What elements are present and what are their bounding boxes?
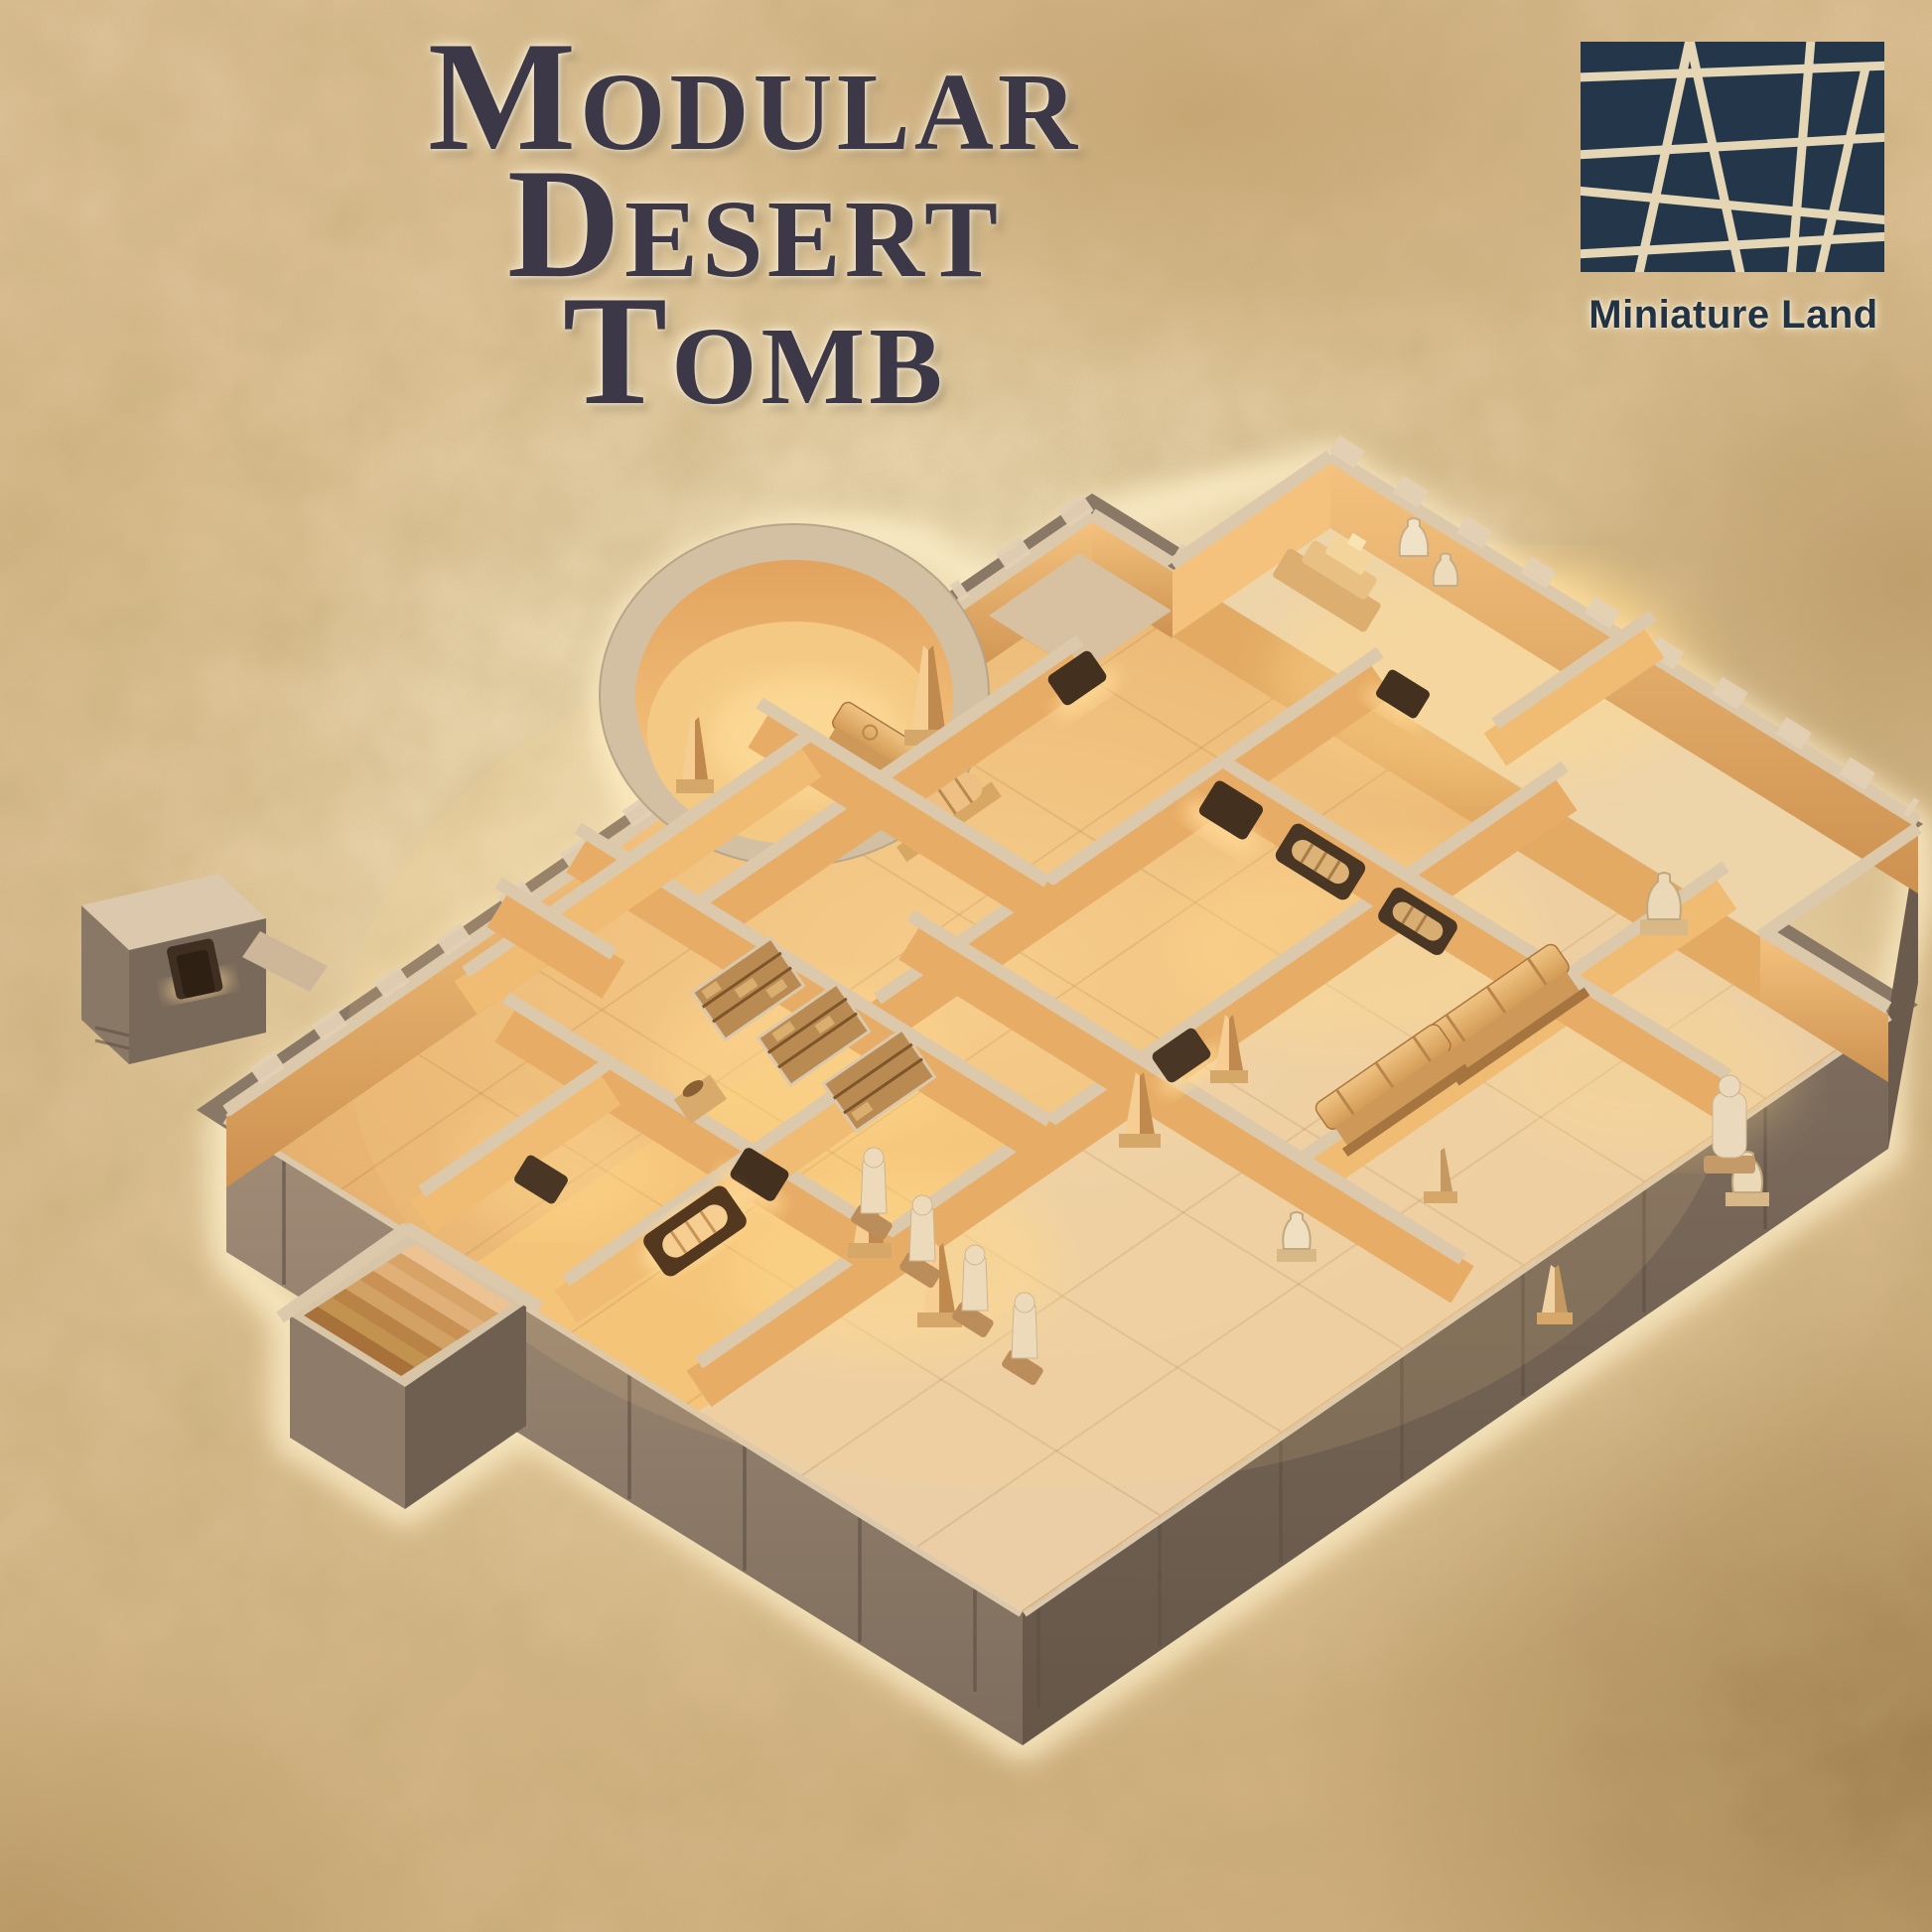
tomb-render	[0, 0, 1932, 1932]
promo-image: Modular Desert Tomb Miniature Land	[0, 0, 1932, 1932]
